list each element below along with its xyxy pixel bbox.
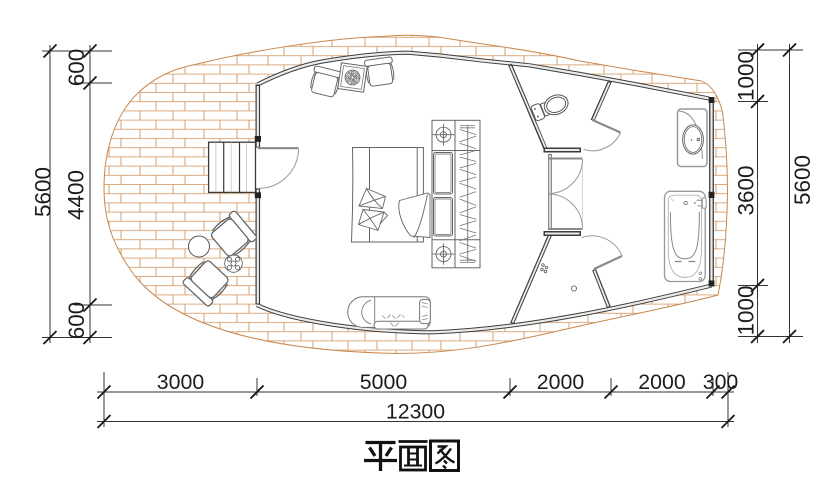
svg-text:5000: 5000 (360, 370, 408, 394)
svg-text:2000: 2000 (537, 370, 585, 394)
svg-text:3600: 3600 (734, 165, 759, 215)
svg-text:1000: 1000 (734, 285, 759, 335)
svg-text:600: 600 (64, 302, 89, 340)
svg-text:4400: 4400 (64, 170, 89, 220)
svg-text:12300: 12300 (386, 400, 445, 424)
svg-text:600: 600 (64, 49, 89, 87)
svg-text:300: 300 (703, 370, 739, 394)
svg-text:5600: 5600 (31, 167, 56, 217)
svg-text:5600: 5600 (790, 155, 815, 205)
svg-text:3000: 3000 (157, 370, 205, 394)
svg-text:2000: 2000 (638, 370, 686, 394)
svg-text:1000: 1000 (734, 51, 759, 101)
